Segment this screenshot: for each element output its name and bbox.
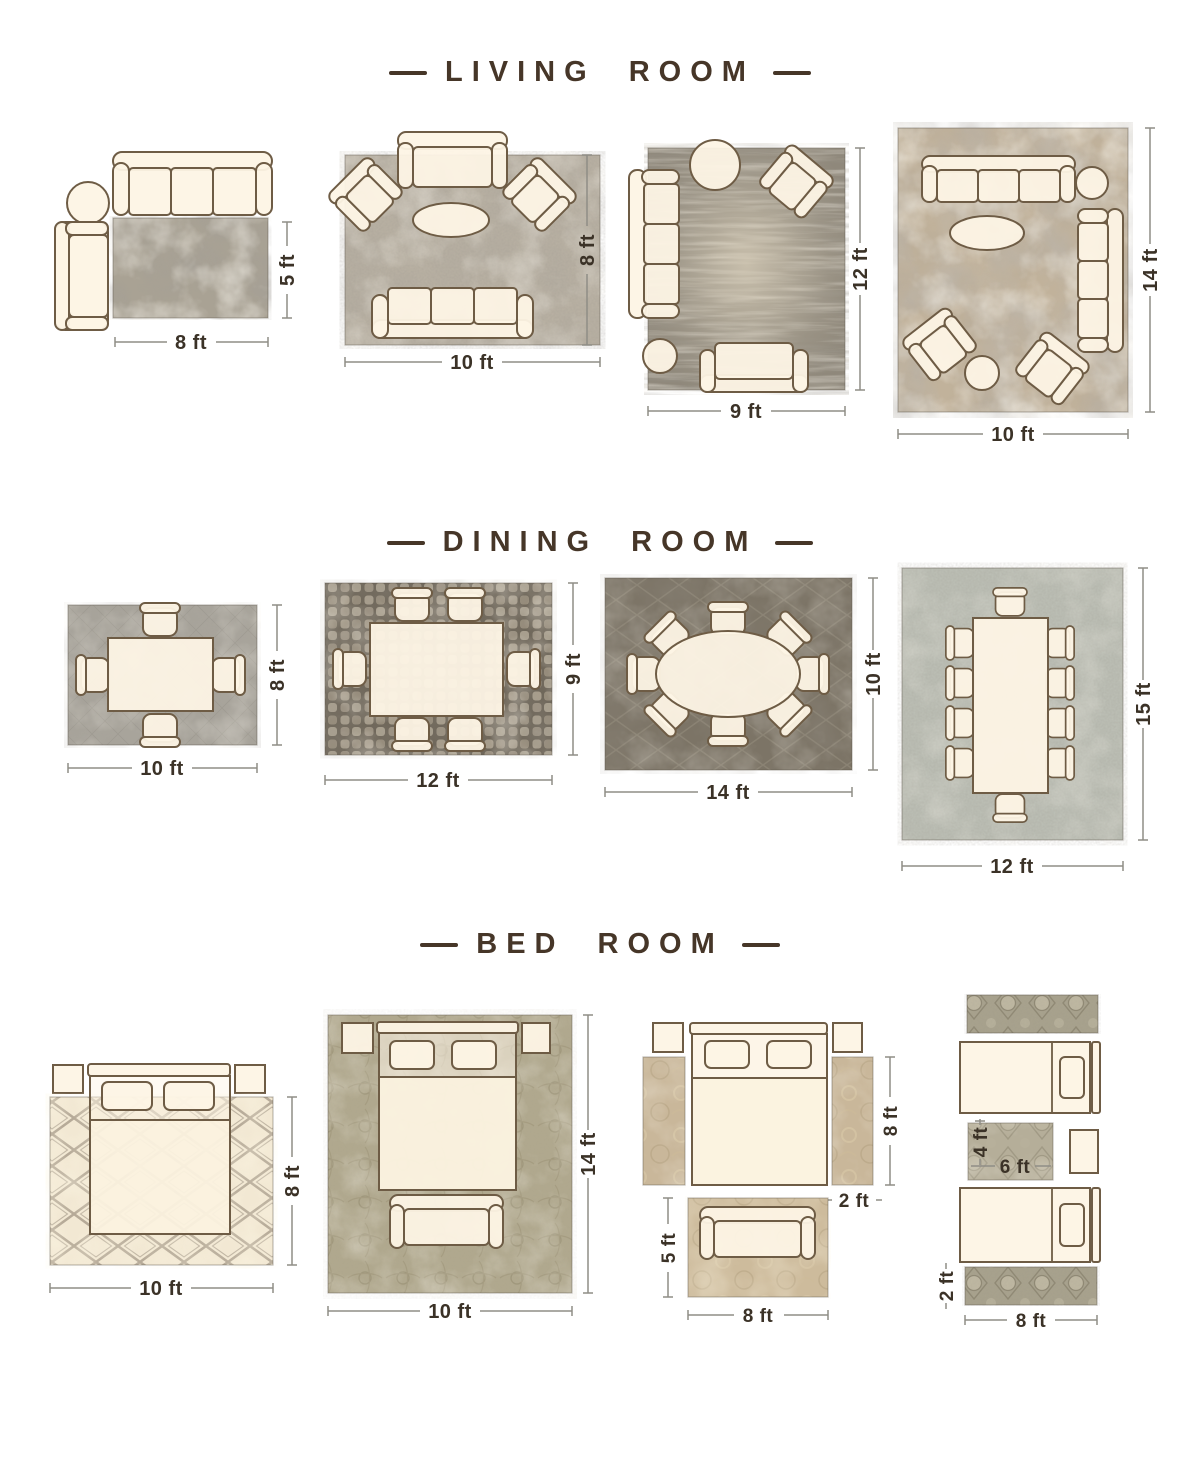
dining-room-title: DINING ROOM xyxy=(443,526,758,559)
width-dimension: 12 ft xyxy=(902,856,1123,878)
height-dimension: 8 ft xyxy=(267,605,289,745)
chair-right-4 xyxy=(1046,746,1074,780)
living-room-title: LIVING ROOM xyxy=(445,56,755,89)
chair-right xyxy=(212,655,245,695)
title-dash-right xyxy=(775,541,813,545)
nightstand-right xyxy=(833,1023,862,1052)
between-rug-height-label: 4 ft xyxy=(971,1127,992,1158)
runner-length-label: 8 ft xyxy=(1016,1311,1047,1332)
layout-living-8x5: 5 ft 8 ft xyxy=(40,125,320,360)
oval-coffee-table xyxy=(413,203,489,237)
height-label: 8 ft xyxy=(577,234,599,266)
width-label: 10 ft xyxy=(450,352,494,374)
chair-left-1 xyxy=(946,626,974,660)
height-label: 8 ft xyxy=(282,1165,304,1197)
layout-bed-10x8: 8 ft 10 ft xyxy=(30,1038,325,1313)
chair-left xyxy=(76,655,109,695)
round-table xyxy=(690,140,740,190)
sofa-right xyxy=(1078,209,1123,352)
runner-top xyxy=(967,995,1098,1033)
width-dimension: 10 ft xyxy=(898,424,1128,446)
height-label: 5 ft xyxy=(277,254,299,286)
width-label: 12 ft xyxy=(990,856,1034,878)
settee xyxy=(398,132,507,188)
layout-bed-runners-foot-rug: 8 ft 2 ft 5 ft 8 ft xyxy=(628,998,913,1333)
height-dimension: 8 ft xyxy=(282,1097,304,1265)
layout-living-10x14: 14 ft 10 ft xyxy=(888,112,1193,452)
layout-living-9x12: 12 ft 9 ft xyxy=(618,128,893,423)
chair-bottom-2 xyxy=(445,718,485,751)
chair-left-4 xyxy=(946,746,974,780)
area-rug xyxy=(113,218,268,318)
layout-living-10x8: 8 ft 10 ft xyxy=(330,115,615,380)
height-label: 14 ft xyxy=(1140,248,1162,292)
runner-right xyxy=(832,1057,873,1185)
section-title-living-room: LIVING ROOM xyxy=(0,56,1200,89)
title-dash-left xyxy=(387,541,425,545)
title-dash-left xyxy=(420,943,458,947)
chair-right-1 xyxy=(1046,626,1074,660)
runner-left xyxy=(643,1057,685,1185)
sofa xyxy=(629,170,679,318)
foot-rug-width-label: 8 ft xyxy=(743,1306,774,1327)
nightstand-right xyxy=(235,1065,265,1093)
width-dimension: 10 ft xyxy=(50,1278,273,1300)
height-label: 15 ft xyxy=(1133,682,1155,726)
runner-width-dimension: 2 ft xyxy=(826,1191,882,1212)
runner-length-dimension: 8 ft xyxy=(965,1311,1097,1332)
height-dimension: 10 ft xyxy=(863,578,885,770)
section-title-dining-room: DINING ROOM xyxy=(0,526,1200,559)
chair-head xyxy=(993,588,1027,616)
bed xyxy=(690,1023,827,1185)
twin-bed-bottom xyxy=(960,1188,1100,1262)
dining-table xyxy=(370,623,503,716)
round-table xyxy=(1076,167,1108,199)
width-label: 9 ft xyxy=(730,401,762,423)
loveseat xyxy=(700,343,808,392)
height-dimension: 15 ft xyxy=(1133,568,1155,840)
layout-twin-beds-runners: 4 ft 6 ft 2 ft 8 ft xyxy=(923,983,1200,1333)
width-dimension: 10 ft xyxy=(328,1301,572,1323)
width-label: 10 ft xyxy=(139,1278,183,1300)
height-label: 12 ft xyxy=(850,247,872,291)
chair-left-2 xyxy=(946,666,974,700)
twin-bed-top xyxy=(960,1042,1100,1113)
chair-left-3 xyxy=(946,706,974,740)
height-dimension: 14 ft xyxy=(1140,128,1162,412)
nightstand-right xyxy=(522,1023,550,1053)
title-dash-right xyxy=(773,71,811,75)
width-label: 10 ft xyxy=(428,1301,472,1323)
runner-width-dimension: 2 ft xyxy=(937,1263,958,1309)
chair-bottom-1 xyxy=(392,718,432,751)
width-dimension: 14 ft xyxy=(605,782,852,804)
chair-right-3 xyxy=(1046,706,1074,740)
runner-width-label: 2 ft xyxy=(839,1191,870,1212)
width-label: 10 ft xyxy=(991,424,1035,446)
foot-rug-height-label: 5 ft xyxy=(659,1233,680,1264)
layout-dining-10x8: 8 ft 10 ft xyxy=(40,578,325,803)
height-label: 10 ft xyxy=(863,652,885,696)
layout-dining-12x9: 9 ft 12 ft xyxy=(315,570,600,815)
layout-bed-10x14: 14 ft 10 ft xyxy=(308,993,613,1328)
bench xyxy=(700,1207,815,1259)
runner-height-label: 8 ft xyxy=(881,1106,902,1137)
chair-right-2 xyxy=(1046,666,1074,700)
nightstand xyxy=(1070,1130,1098,1173)
nightstand-left xyxy=(342,1023,373,1053)
dining-table xyxy=(973,618,1048,793)
oval-coffee-table xyxy=(950,216,1024,250)
width-dimension: 9 ft xyxy=(648,401,845,423)
width-dimension: 8 ft xyxy=(115,332,268,354)
height-dimension: 9 ft xyxy=(563,583,585,755)
height-label: 9 ft xyxy=(563,653,585,685)
bed-room-title: BED ROOM xyxy=(476,928,724,961)
chair-top-1 xyxy=(392,588,432,621)
title-dash-left xyxy=(389,71,427,75)
height-label: 14 ft xyxy=(578,1132,600,1176)
chair-left xyxy=(333,649,366,689)
round-side-table xyxy=(643,339,677,373)
chair-foot xyxy=(993,794,1027,822)
oval-dining-table xyxy=(656,631,800,717)
chair-bottom xyxy=(140,714,180,747)
sofa xyxy=(372,288,533,338)
round-side-table xyxy=(965,356,999,390)
chair-right xyxy=(507,649,540,689)
bed xyxy=(377,1022,518,1190)
between-rug-width-label: 6 ft xyxy=(1000,1157,1031,1178)
title-dash-right xyxy=(742,943,780,947)
dining-table xyxy=(108,638,213,711)
height-label: 8 ft xyxy=(267,659,289,691)
rug-size-guide: LIVING ROOM DINING ROOM BED ROOM 5 ft 8 … xyxy=(0,0,1200,1467)
width-label: 12 ft xyxy=(416,770,460,792)
round-side-table xyxy=(67,182,109,224)
runner-bottom xyxy=(965,1267,1097,1305)
runner-height-dimension: 8 ft xyxy=(881,1057,902,1185)
chair-top xyxy=(140,603,180,636)
chair-top-2 xyxy=(445,588,485,621)
bed xyxy=(88,1064,230,1234)
runner-width-label: 2 ft xyxy=(937,1271,958,1302)
section-title-bed-room: BED ROOM xyxy=(0,928,1200,961)
width-label: 8 ft xyxy=(175,332,207,354)
sofa xyxy=(113,152,272,215)
width-dimension: 10 ft xyxy=(345,352,600,374)
width-label: 10 ft xyxy=(140,758,184,780)
height-dimension: 12 ft xyxy=(850,148,872,390)
chaise xyxy=(55,222,108,330)
height-dimension: 14 ft xyxy=(578,1015,600,1293)
width-label: 14 ft xyxy=(706,782,750,804)
bench xyxy=(390,1195,503,1248)
height-dimension: 5 ft xyxy=(277,222,299,318)
layout-dining-14x10: 10 ft 14 ft xyxy=(595,570,895,815)
layout-dining-12x15: 15 ft 12 ft xyxy=(888,558,1183,908)
foot-rug-height-dimension: 5 ft xyxy=(659,1198,680,1297)
foot-rug-width-dimension: 8 ft xyxy=(688,1306,828,1327)
nightstand-left xyxy=(653,1023,683,1052)
nightstand-left xyxy=(53,1065,83,1093)
width-dimension: 12 ft xyxy=(325,770,552,792)
width-dimension: 10 ft xyxy=(68,758,257,780)
sofa-top xyxy=(922,156,1075,202)
